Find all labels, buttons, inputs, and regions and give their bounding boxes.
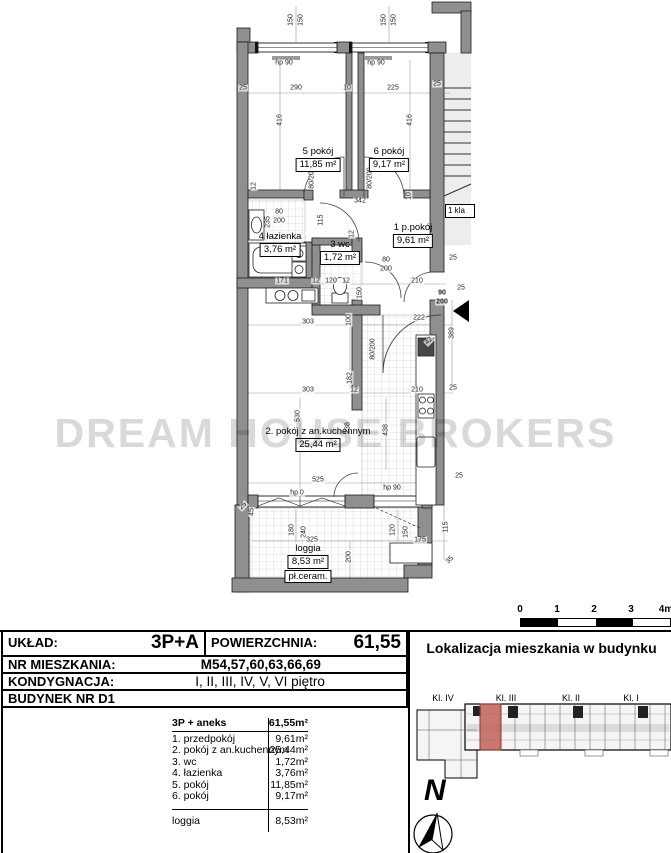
room-list-item: 6. pokój9,17m² bbox=[172, 791, 308, 802]
highlighted-apartment bbox=[480, 704, 501, 750]
building-overview-plan bbox=[415, 700, 671, 785]
scale-number: 3 bbox=[628, 604, 634, 615]
scale-number: 0 bbox=[517, 604, 523, 615]
table-row-nr-mieszkania: NR MIESZKANIA: M54,57,60,63,66,69 bbox=[3, 657, 406, 674]
uklad-value: 3P+A bbox=[151, 632, 204, 654]
powierzchnia-value: 61,55 bbox=[353, 632, 406, 654]
room-label: 3 wc1,72 m² bbox=[320, 239, 360, 265]
table-row-kondygnacja: KONDYGNACJA: I, II, III, IV, V, VI piętr… bbox=[3, 674, 406, 691]
uklad-label: UKŁAD: bbox=[3, 635, 58, 650]
watermark: DREAM HOUSE BROKERS bbox=[0, 410, 671, 457]
north-compass-icon bbox=[411, 810, 457, 853]
powierzchnia-label: POWIERZCHNIA: bbox=[206, 635, 317, 650]
room-list: 3P + aneks 61,55m² 1. przedpokój9,61m²2.… bbox=[172, 716, 308, 828]
budynek-label: BUDYNEK NR D1 bbox=[3, 691, 115, 706]
nr-mieszkania-value: M54,57,60,63,66,69 bbox=[116, 657, 406, 672]
room-label: 4 łazienka3,76 m² bbox=[259, 231, 302, 257]
scale-number: 2 bbox=[591, 604, 597, 615]
room-label: 6 pokój9,17 m² bbox=[369, 146, 409, 172]
scale-bar-segments bbox=[520, 618, 671, 627]
apartment-info-table: UKŁAD: 3P+A POWIERZCHNIA: 61,55 NR MIESZ… bbox=[1, 630, 408, 708]
room-list-header-name: 3P + aneks bbox=[172, 717, 226, 729]
room-list-footer-name: loggia bbox=[172, 815, 200, 827]
room-list-separator bbox=[172, 809, 308, 810]
nr-mieszkania-label: NR MIESZKANIA: bbox=[3, 657, 116, 672]
scale-bar: 01234m bbox=[506, 604, 671, 630]
kondygnacja-value: I, II, III, IV, V, VI piętro bbox=[114, 674, 406, 689]
scale-number: 4m bbox=[659, 604, 671, 615]
room-label: 5 pokój11,85 m² bbox=[296, 146, 341, 172]
panel-divider bbox=[408, 630, 410, 853]
room-list-header: 3P + aneks 61,55m² bbox=[172, 716, 308, 730]
location-panel-title: Lokalizacja mieszkania w budynku bbox=[415, 640, 668, 656]
scale-number: 1 bbox=[554, 604, 560, 615]
room-list-footer: loggia 8,53m² bbox=[172, 816, 308, 827]
north-label: N bbox=[424, 774, 446, 808]
room-label: loggia8,53 m²pł.ceram. bbox=[284, 543, 331, 583]
room-list-items: 1. przedpokój9,61m²2. pokój z an.kuchenn… bbox=[172, 734, 308, 802]
room-list-underline bbox=[172, 731, 308, 732]
table-row-uklad: UKŁAD: 3P+A POWIERZCHNIA: 61,55 bbox=[3, 630, 406, 657]
apartment-plan-page: 150150150150hp 90hp 90252901022525416416… bbox=[0, 0, 671, 853]
room-label: 1 p.pokój9,61 m² bbox=[393, 222, 433, 248]
staircase-label: 1 kla bbox=[445, 204, 475, 218]
room-list-footer-area: 8,53m² bbox=[275, 816, 308, 827]
room-list-header-area: 61,55m² bbox=[269, 716, 308, 730]
room-labels-layer: 5 pokój11,85 m²6 pokój9,17 m²4 łazienka3… bbox=[0, 0, 671, 600]
table-row-budynek: BUDYNEK NR D1 bbox=[3, 691, 406, 706]
kondygnacja-label: KONDYGNACJA: bbox=[3, 674, 114, 689]
